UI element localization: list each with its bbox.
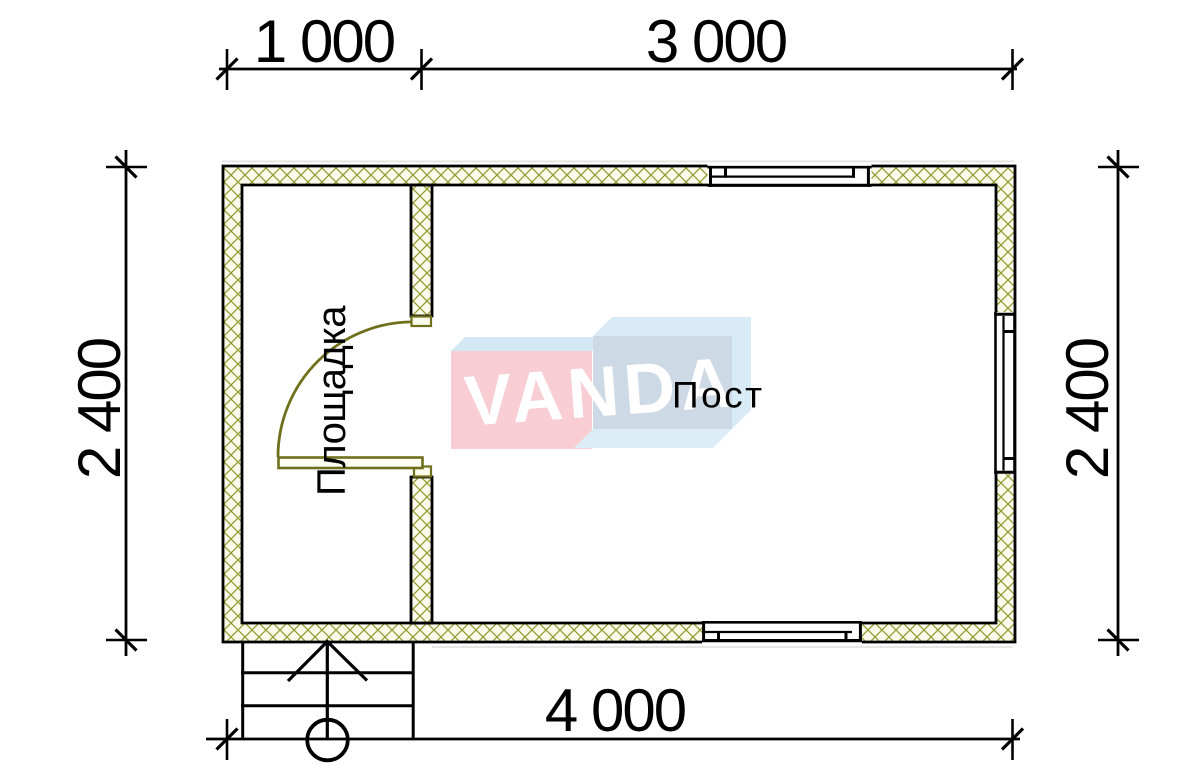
svg-text:2 400: 2 400	[1054, 338, 1121, 479]
svg-text:2 400: 2 400	[66, 338, 133, 479]
svg-text:4 000: 4 000	[545, 677, 686, 744]
svg-text:Площадка: Площадка	[310, 305, 354, 496]
svg-text:3 000: 3 000	[646, 8, 787, 75]
svg-text:Пост: Пост	[672, 375, 765, 416]
svg-text:1 000: 1 000	[254, 8, 395, 75]
